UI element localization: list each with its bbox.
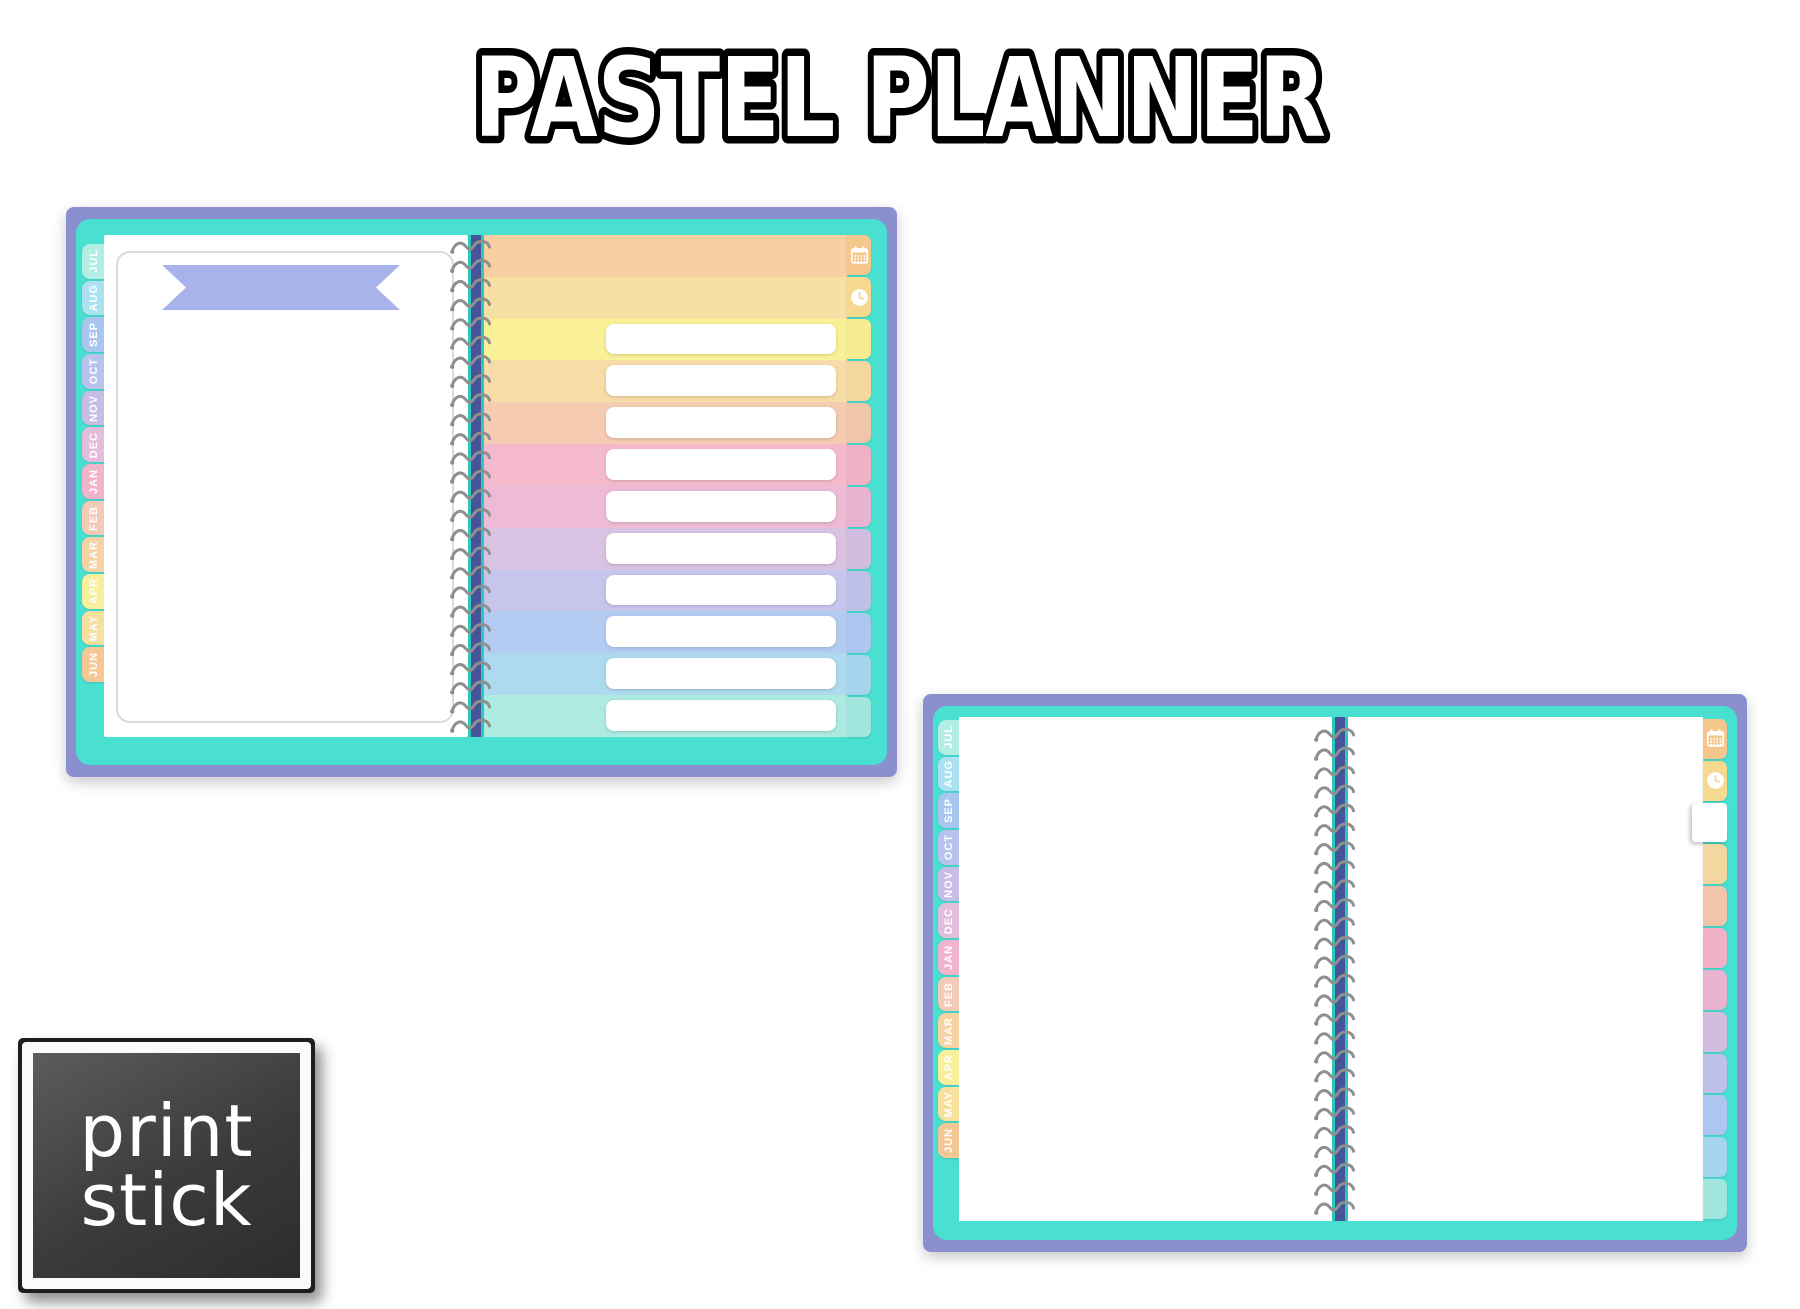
spiral-loop xyxy=(1314,937,1353,950)
spiral-loop xyxy=(450,605,489,618)
month-tab-label: JAN xyxy=(943,945,955,970)
side-tab-10[interactable] xyxy=(847,613,871,653)
entry-box[interactable] xyxy=(606,700,836,731)
spiral-loop xyxy=(450,299,489,312)
month-tab-sep[interactable]: SEP xyxy=(82,317,105,352)
month-tab-dec[interactable]: DEC xyxy=(938,903,960,938)
side-tabs-column xyxy=(847,235,871,737)
month-tab-label: AUG xyxy=(88,284,100,311)
side-tab-calendar[interactable] xyxy=(1703,719,1727,759)
spiral-loop xyxy=(1314,786,1353,799)
spiral-loop xyxy=(1314,862,1353,875)
stripe-row xyxy=(484,611,847,653)
spiral-loop xyxy=(450,701,489,714)
left-page xyxy=(959,717,1332,1221)
month-tab-label: FEB xyxy=(943,982,955,1007)
side-tab-6[interactable] xyxy=(847,445,871,485)
spiral-binding xyxy=(1312,725,1356,1217)
side-tab-active[interactable] xyxy=(1692,803,1727,843)
spiral-loop xyxy=(1314,1146,1353,1159)
spiral-loop xyxy=(450,318,489,331)
stripe-row xyxy=(484,570,847,612)
entry-box[interactable] xyxy=(606,533,836,564)
month-tab-label: MAR xyxy=(88,541,100,569)
stripe-row xyxy=(484,486,847,528)
clock-icon xyxy=(1705,770,1726,791)
spiral-loop xyxy=(1314,729,1353,742)
calendar-icon xyxy=(849,245,870,266)
month-tab-label: AUG xyxy=(943,760,955,787)
side-tab-9[interactable] xyxy=(1703,1054,1727,1094)
month-tab-feb[interactable]: FEB xyxy=(82,501,105,536)
month-tab-oct[interactable]: OCT xyxy=(82,354,105,389)
stripe-row xyxy=(484,653,847,695)
spiral-loop xyxy=(450,663,489,676)
pastel-planner-poster: PASTEL PLANNER JULAUGSEPOCTNOVDECJANFEBM… xyxy=(0,0,1800,1309)
spiral-loop xyxy=(450,356,489,369)
month-tabs-column: JULAUGSEPOCTNOVDECJANFEBMARAPRMAYJUN xyxy=(82,244,105,682)
entry-box[interactable] xyxy=(606,407,836,438)
stripe-row xyxy=(484,444,847,486)
month-tab-apr[interactable]: APR xyxy=(938,1050,960,1085)
month-tab-label: JUL xyxy=(88,249,100,273)
spiral-loop xyxy=(1314,1070,1353,1083)
spiral-loop xyxy=(450,260,489,273)
spiral-loop xyxy=(1314,1032,1353,1045)
spiral-loop xyxy=(450,529,489,542)
side-tab-7[interactable] xyxy=(1703,970,1727,1010)
month-tab-label: FEB xyxy=(88,506,100,531)
month-tab-label: NOV xyxy=(943,871,955,898)
month-tab-jan[interactable]: JAN xyxy=(938,940,960,975)
printstick-logo: print stick xyxy=(18,1038,315,1293)
month-tab-jun[interactable]: JUN xyxy=(938,1123,960,1158)
page-title: PASTEL PLANNER xyxy=(450,20,1350,175)
spiral-loop xyxy=(1314,1127,1353,1140)
month-tab-label: MAR xyxy=(943,1017,955,1045)
side-tab-8[interactable] xyxy=(847,529,871,569)
month-tab-label: APR xyxy=(943,1054,955,1080)
spiral-loop xyxy=(450,586,489,599)
entry-box[interactable] xyxy=(606,658,836,689)
month-tab-label: DEC xyxy=(88,432,100,458)
spiral-loop xyxy=(450,452,489,465)
month-tab-label: JUL xyxy=(943,725,955,749)
spiral-loop xyxy=(450,414,489,427)
logo-word-print: print xyxy=(79,1097,253,1165)
spiral-loop xyxy=(450,490,489,503)
spiral-loop xyxy=(1314,1089,1353,1102)
month-tab-label: JUN xyxy=(88,652,100,677)
stripe-row xyxy=(484,528,847,570)
title-page-frame xyxy=(116,251,454,723)
month-tab-feb[interactable]: FEB xyxy=(938,977,960,1012)
side-tab-11[interactable] xyxy=(1703,1137,1727,1177)
month-tab-label: MAY xyxy=(943,1091,955,1117)
spiral-loop xyxy=(1314,805,1353,818)
month-tab-sep[interactable]: SEP xyxy=(938,793,960,828)
month-tab-label: DEC xyxy=(943,908,955,934)
spiral-loop xyxy=(450,471,489,484)
right-page xyxy=(484,235,847,737)
spiral-loop xyxy=(450,337,489,350)
spiral-loop xyxy=(1314,843,1353,856)
spiral-loop xyxy=(1314,1013,1353,1026)
entry-box[interactable] xyxy=(606,324,836,355)
spiral-loop xyxy=(1314,767,1353,780)
side-tab-4[interactable] xyxy=(1703,844,1727,884)
entry-box[interactable] xyxy=(606,449,836,480)
side-tab-9[interactable] xyxy=(847,571,871,611)
spiral-loop xyxy=(450,644,489,657)
entry-box[interactable] xyxy=(606,616,836,647)
month-tab-aug[interactable]: AUG xyxy=(938,757,960,792)
month-tab-jul[interactable]: JUL xyxy=(938,720,960,755)
side-tab-calendar[interactable] xyxy=(847,235,871,275)
spiral-loop xyxy=(1314,994,1353,1007)
clock-icon xyxy=(849,287,870,308)
side-tab-4[interactable] xyxy=(847,361,871,401)
entry-box[interactable] xyxy=(606,491,836,522)
month-tab-label: MAY xyxy=(88,615,100,641)
month-tab-jan[interactable]: JAN xyxy=(82,464,105,499)
month-tab-label: OCT xyxy=(88,358,100,384)
side-tab-6[interactable] xyxy=(1703,928,1727,968)
rainbow-list xyxy=(484,235,847,737)
planner-mockup-2: JULAUGSEPOCTNOVDECJANFEBMARAPRMAYJUN xyxy=(923,694,1747,1252)
side-tab-12[interactable] xyxy=(1703,1179,1727,1219)
side-tab-5[interactable] xyxy=(1703,886,1727,926)
month-tab-oct[interactable]: OCT xyxy=(938,830,960,865)
side-tab-7[interactable] xyxy=(847,487,871,527)
stripe-row xyxy=(484,277,847,319)
month-tab-label: NOV xyxy=(88,395,100,422)
side-tab-11[interactable] xyxy=(847,655,871,695)
spiral-loop xyxy=(450,682,489,695)
month-tab-label: SEP xyxy=(943,798,955,823)
spiral-loop xyxy=(1314,975,1353,988)
month-tab-may[interactable]: MAY xyxy=(82,611,105,646)
entry-box[interactable] xyxy=(606,575,836,606)
poster-title-text: PASTEL PLANNER xyxy=(474,34,1326,162)
right-page xyxy=(1348,717,1703,1221)
calendar-icon xyxy=(1705,728,1726,749)
spiral-loop xyxy=(450,720,489,733)
spiral-loop xyxy=(1314,1202,1353,1215)
side-tab-10[interactable] xyxy=(1703,1095,1727,1135)
spiral-loop xyxy=(450,375,489,388)
spiral-loop xyxy=(450,433,489,446)
printstick-logo-frame: print stick xyxy=(22,1042,311,1289)
month-tab-may[interactable]: MAY xyxy=(938,1087,960,1122)
planner-mockup-1: JULAUGSEPOCTNOVDECJANFEBMARAPRMAYJUN xyxy=(66,207,897,777)
month-tab-apr[interactable]: APR xyxy=(82,574,105,609)
side-tabs-column xyxy=(1703,719,1727,1219)
month-tab-nov[interactable]: NOV xyxy=(82,391,105,426)
spiral-loop xyxy=(1314,1164,1353,1177)
spiral-loop xyxy=(1314,824,1353,837)
entry-box[interactable] xyxy=(606,365,836,396)
spiral-loop xyxy=(1314,748,1353,761)
side-tab-12[interactable] xyxy=(847,697,871,737)
month-tab-label: JUN xyxy=(943,1128,955,1153)
month-tab-jun[interactable]: JUN xyxy=(82,647,105,682)
spiral-loop xyxy=(450,509,489,522)
stripe-row xyxy=(484,319,847,361)
spiral-loop xyxy=(450,280,489,293)
month-tab-aug[interactable]: AUG xyxy=(82,281,105,316)
spiral-loop xyxy=(1314,956,1353,969)
spiral-loop xyxy=(450,395,489,408)
month-tabs-column: JULAUGSEPOCTNOVDECJANFEBMARAPRMAYJUN xyxy=(938,720,960,1158)
stripe-row xyxy=(484,235,847,277)
spiral-loop xyxy=(450,241,489,254)
spiral-loop xyxy=(1314,1108,1353,1121)
title-banner xyxy=(162,265,400,310)
spiral-loop xyxy=(1314,918,1353,931)
spiral-loop xyxy=(1314,1183,1353,1196)
month-tab-dec[interactable]: DEC xyxy=(82,427,105,462)
side-tab-5[interactable] xyxy=(847,403,871,443)
month-tab-nov[interactable]: NOV xyxy=(938,867,960,902)
side-tab-8[interactable] xyxy=(1703,1012,1727,1052)
logo-word-stick: stick xyxy=(80,1166,252,1234)
month-tab-label: SEP xyxy=(88,322,100,347)
stripe-row xyxy=(484,402,847,444)
title-graphic: PASTEL PLANNER xyxy=(450,20,1350,175)
month-tab-label: APR xyxy=(88,578,100,604)
spiral-loop xyxy=(450,548,489,561)
spiral-binding xyxy=(448,237,492,735)
spiral-loop xyxy=(450,624,489,637)
side-tab-clock[interactable] xyxy=(847,277,871,317)
stripe-row xyxy=(484,360,847,402)
stripe-row xyxy=(484,695,847,737)
spiral-loop xyxy=(1314,900,1353,913)
side-tab-3[interactable] xyxy=(847,319,871,359)
spiral-loop xyxy=(1314,881,1353,894)
month-tab-label: OCT xyxy=(943,834,955,860)
side-tab-clock[interactable] xyxy=(1703,761,1727,801)
month-tab-label: JAN xyxy=(88,469,100,494)
spiral-loop xyxy=(1314,1051,1353,1064)
left-page xyxy=(104,235,468,737)
month-tab-jul[interactable]: JUL xyxy=(82,244,105,279)
spiral-loop xyxy=(450,567,489,580)
month-tab-mar[interactable]: MAR xyxy=(82,537,105,572)
month-tab-mar[interactable]: MAR xyxy=(938,1013,960,1048)
